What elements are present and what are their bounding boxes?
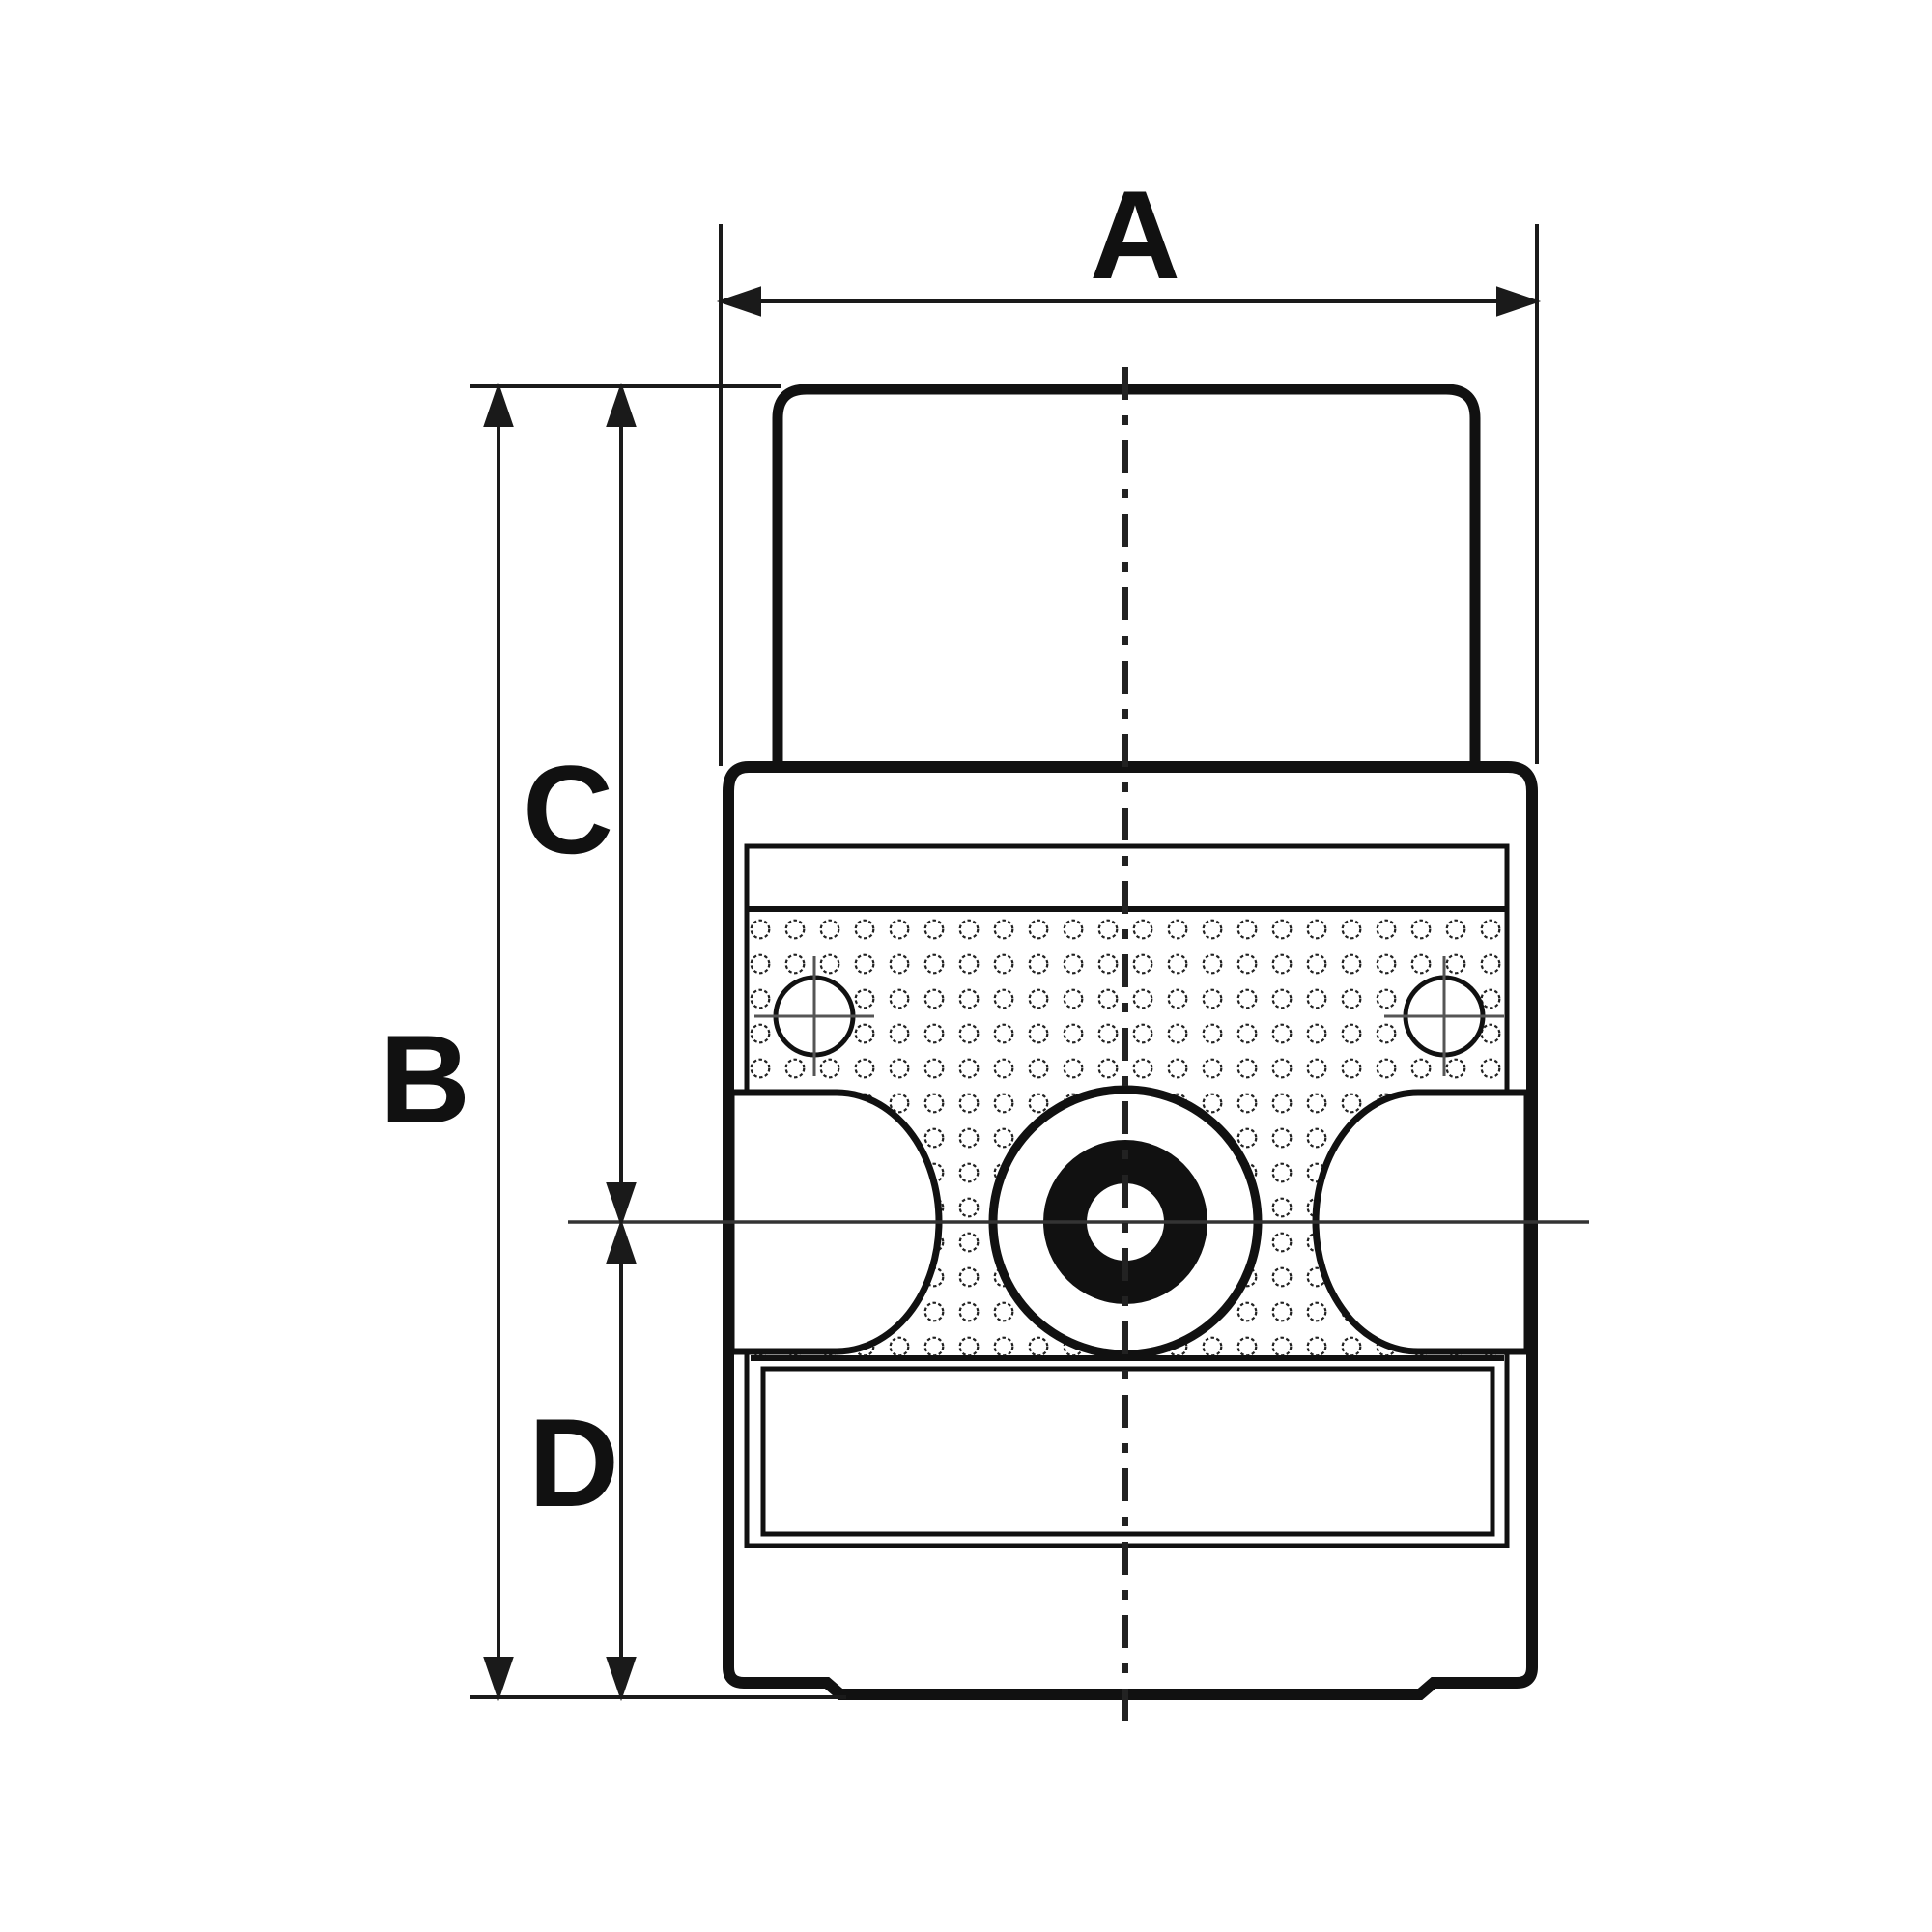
a-arrow-right xyxy=(1498,289,1535,314)
c-arrow-top xyxy=(609,388,634,425)
c-arrow-bottom xyxy=(609,1184,634,1221)
a-arrow-left xyxy=(723,289,759,314)
dimension-diagram-svg: A B C D xyxy=(0,0,1932,1932)
technical-drawing-canvas: A B C D xyxy=(0,0,1932,1932)
d-arrow-bottom xyxy=(609,1659,634,1695)
d-arrow-top xyxy=(609,1225,634,1262)
dimension-label-d: D xyxy=(528,1392,619,1533)
dimension-label-b: B xyxy=(380,1009,470,1150)
dimension-label-c: C xyxy=(523,739,613,880)
dimension-label-a: A xyxy=(1090,164,1180,305)
b-arrow-top xyxy=(486,388,511,425)
b-arrow-bottom xyxy=(486,1659,511,1695)
